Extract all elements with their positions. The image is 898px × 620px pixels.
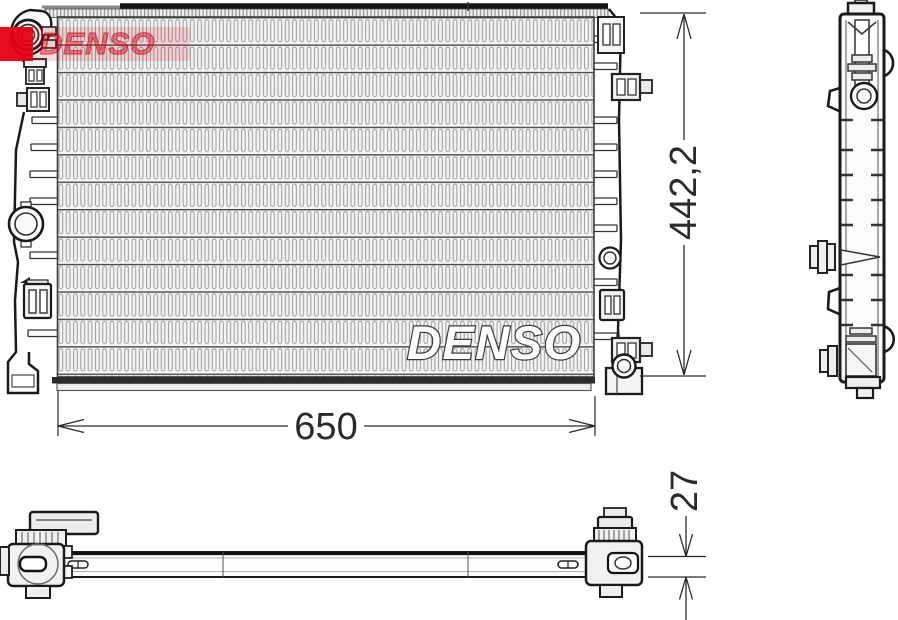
bottom-plate-dark bbox=[52, 377, 595, 384]
drawing-canvas: DENSO bbox=[0, 0, 898, 620]
side-upper-connector bbox=[848, 50, 893, 109]
right-top-bracket bbox=[598, 17, 624, 53]
left-pin-bracket bbox=[17, 88, 49, 111]
dimension-height-label: 442,2 bbox=[663, 145, 705, 240]
bottom-plate-light bbox=[57, 384, 591, 391]
side-view bbox=[810, 0, 894, 398]
side-hook-left-upper bbox=[828, 88, 840, 111]
dimension-depth-label: 27 bbox=[664, 470, 706, 512]
right-pin-bracket-upper bbox=[612, 74, 652, 100]
right-tank bbox=[594, 9, 652, 394]
dimension-width-label: 650 bbox=[294, 406, 357, 448]
dimension-depth: 27 bbox=[648, 470, 706, 620]
dimension-height: 442,2 bbox=[640, 13, 706, 376]
denso-logo-watermark: DENSO bbox=[0, 26, 190, 61]
bottom-view bbox=[0, 508, 642, 598]
right-connector-block bbox=[600, 290, 624, 320]
side-hook-left-lower bbox=[828, 288, 840, 314]
denso-logo-red-block bbox=[0, 27, 33, 61]
right-mid-port bbox=[600, 248, 621, 269]
radiator-technical-drawing: DENSO bbox=[0, 0, 898, 620]
left-tank bbox=[8, 10, 57, 393]
left-foot-detail bbox=[12, 375, 34, 387]
left-connector-block bbox=[20, 277, 51, 318]
denso-logo-text: DENSO bbox=[40, 26, 155, 61]
core-denso-watermark: DENSO bbox=[407, 316, 582, 369]
left-upper-bracket bbox=[24, 59, 46, 84]
bottom-bar bbox=[45, 552, 603, 577]
dimension-width: 650 bbox=[58, 391, 595, 448]
bottom-bar-slot-right bbox=[558, 561, 578, 568]
bottom-right-connector bbox=[586, 508, 642, 597]
